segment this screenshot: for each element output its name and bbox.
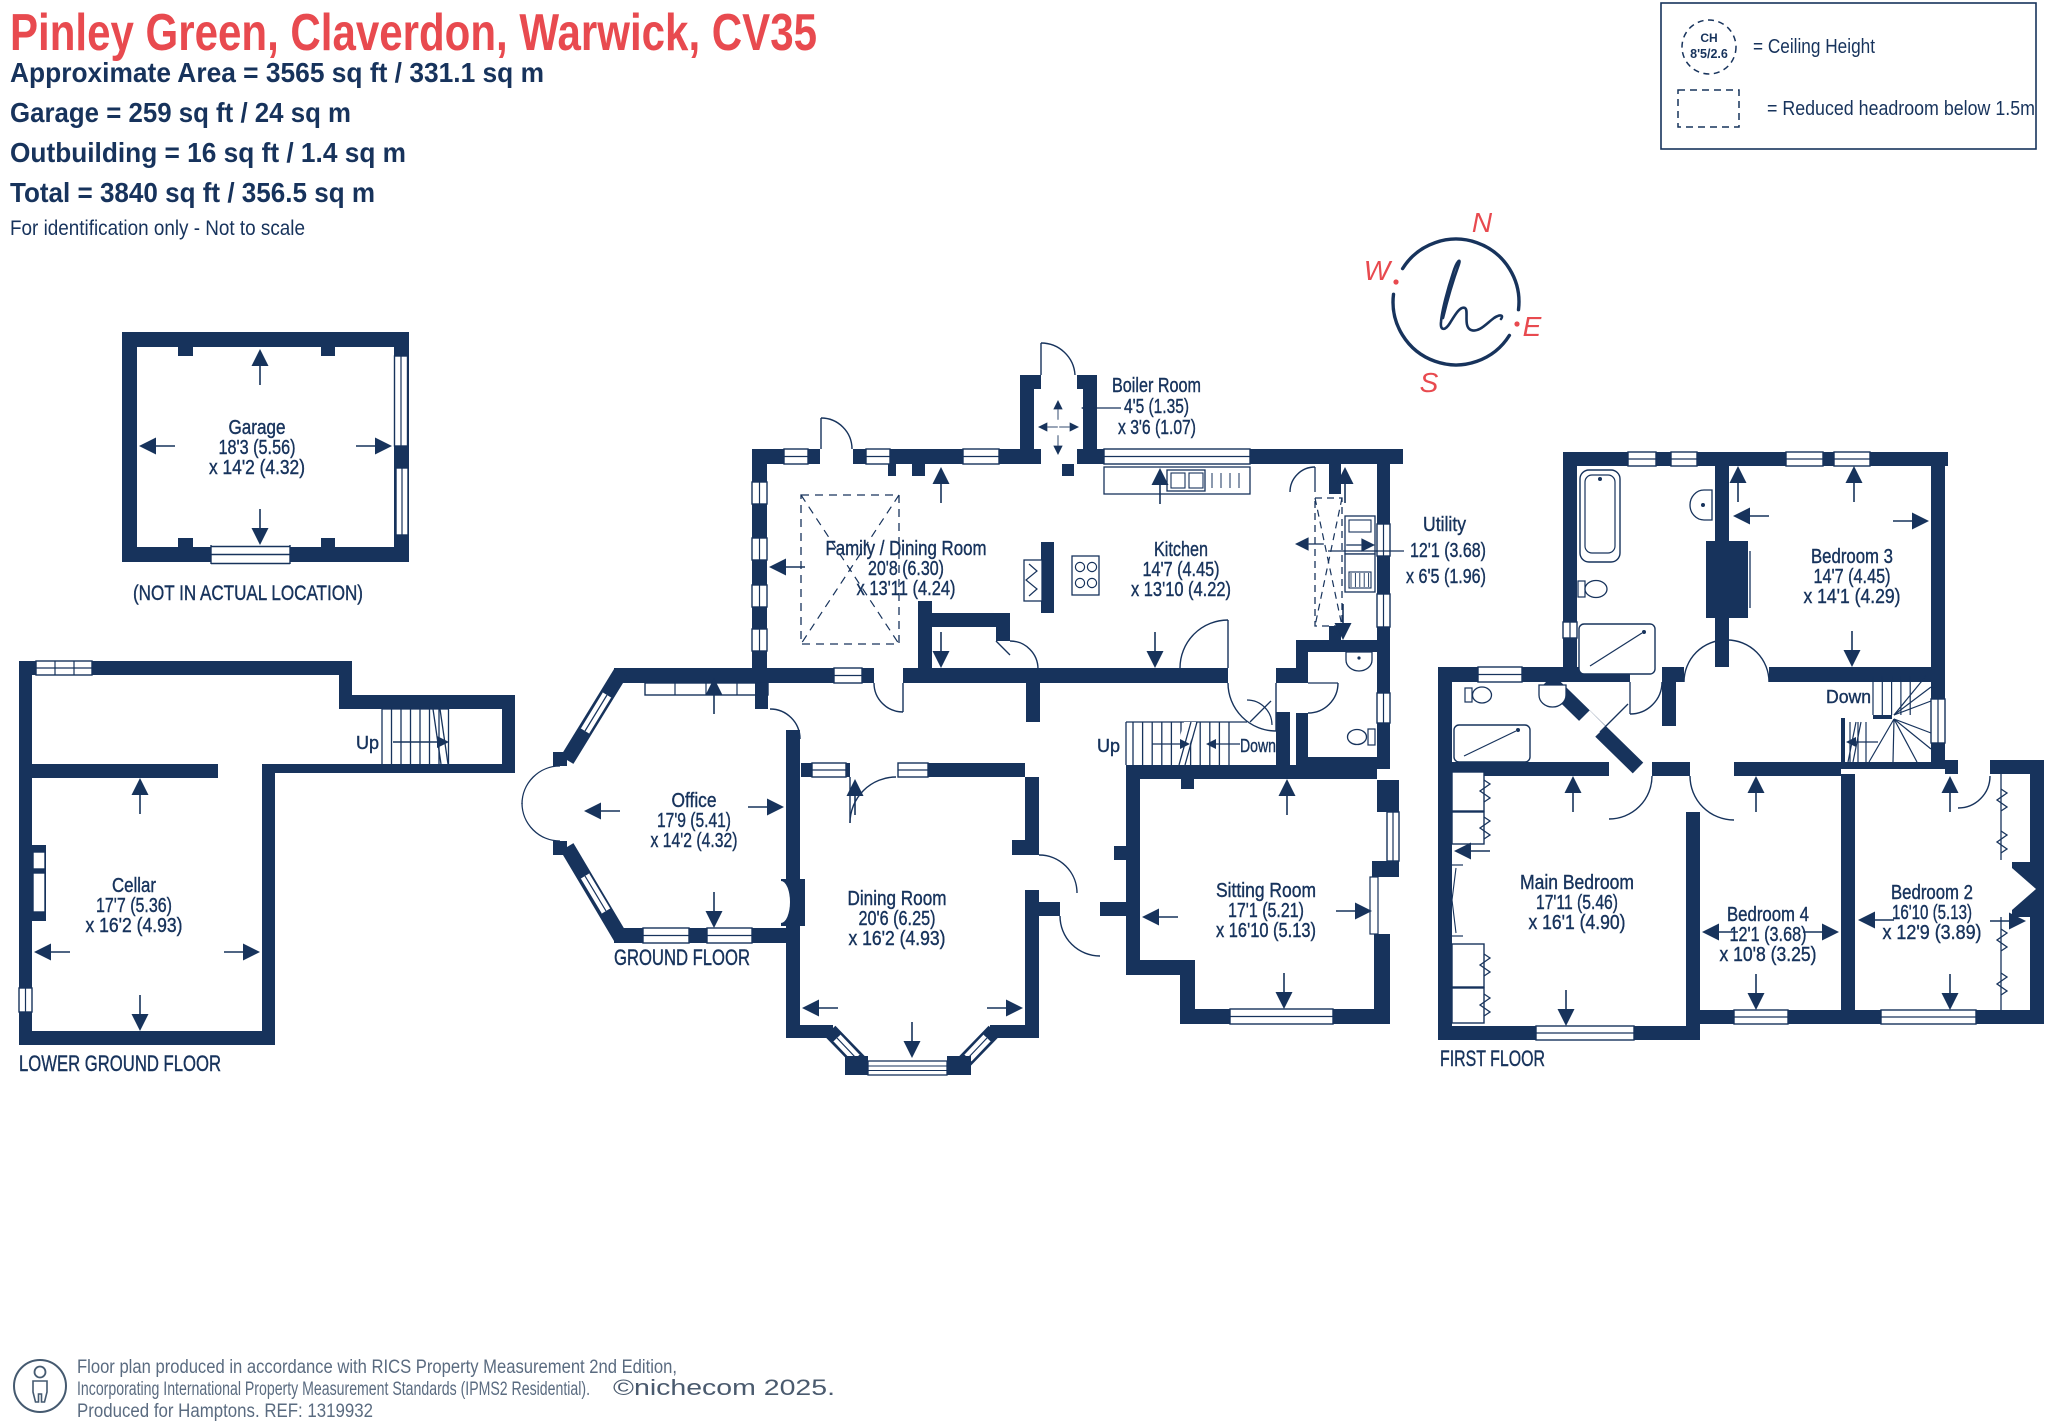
svg-text:Incorporating International Pr: Incorporating International Property Mea… <box>77 1379 590 1400</box>
svg-text:(NOT IN ACTUAL LOCATION): (NOT IN ACTUAL LOCATION) <box>133 582 363 605</box>
svg-text:W: W <box>1364 255 1393 286</box>
svg-text:Family / Dining Room: Family / Dining Room <box>826 538 987 560</box>
svg-text:Office: Office <box>672 790 717 812</box>
svg-text:14'7 (4.45): 14'7 (4.45) <box>1814 566 1891 588</box>
svg-text:For identification only - Not: For identification only - Not to scale <box>10 217 305 240</box>
svg-text:CH: CH <box>1700 31 1717 45</box>
svg-text:Bedroom 3: Bedroom 3 <box>1811 546 1893 568</box>
svg-text:4'5 (1.35): 4'5 (1.35) <box>1124 396 1189 418</box>
svg-text:17'7 (5.36): 17'7 (5.36) <box>96 895 172 917</box>
svg-text:Up: Up <box>1097 736 1120 756</box>
svg-text:x 14'1 (4.29): x 14'1 (4.29) <box>1804 586 1901 608</box>
svg-text:Floor plan produced in accorda: Floor plan produced in accordance with R… <box>77 1357 677 1378</box>
svg-text:Outbuilding = 16 sq ft / 1.4 s: Outbuilding = 16 sq ft / 1.4 sq m <box>10 137 406 168</box>
svg-text:14'7 (4.45): 14'7 (4.45) <box>1143 559 1220 581</box>
svg-text:Boiler Room: Boiler Room <box>1112 375 1201 397</box>
svg-text:8'5/2.6: 8'5/2.6 <box>1690 47 1728 61</box>
svg-text:x 10'8 (3.25): x 10'8 (3.25) <box>1720 944 1817 966</box>
svg-text:20'6 (6.25): 20'6 (6.25) <box>859 908 936 930</box>
svg-text:x 13'11 (4.24): x 13'11 (4.24) <box>857 578 956 600</box>
svg-text:x 3'6 (1.07): x 3'6 (1.07) <box>1118 417 1196 439</box>
svg-text:x 16'2 (4.93): x 16'2 (4.93) <box>849 928 946 950</box>
svg-text:Up: Up <box>356 733 379 753</box>
svg-text:Sitting Room: Sitting Room <box>1216 880 1316 902</box>
svg-text:x 13'10 (4.22): x 13'10 (4.22) <box>1131 579 1231 601</box>
svg-text:Bedroom 2: Bedroom 2 <box>1891 882 1973 904</box>
svg-text:GROUND FLOOR: GROUND FLOOR <box>614 945 750 970</box>
svg-text:12'1 (3.68): 12'1 (3.68) <box>1410 540 1486 562</box>
svg-text:x 14'2 (4.32): x 14'2 (4.32) <box>651 830 738 852</box>
svg-text:S: S <box>1420 367 1439 398</box>
svg-text:©nichecom 2025.: ©nichecom 2025. <box>613 1375 835 1400</box>
svg-text:Bedroom 4: Bedroom 4 <box>1727 904 1809 926</box>
svg-text:Kitchen: Kitchen <box>1154 539 1208 561</box>
svg-text:LOWER GROUND FLOOR: LOWER GROUND FLOOR <box>19 1051 221 1076</box>
svg-text:Main Bedroom: Main Bedroom <box>1520 872 1634 894</box>
svg-text:Produced for Hamptons. REF:: Produced for Hamptons. REF: 1319932 <box>77 1401 373 1422</box>
svg-text:Garage = 259 sq ft / 24 sq m: Garage = 259 sq ft / 24 sq m <box>10 97 351 128</box>
svg-text:18'3 (5.56): 18'3 (5.56) <box>219 437 296 459</box>
svg-text:= Reduced headroom below 1.5m: = Reduced headroom below 1.5m <box>1767 98 2035 120</box>
svg-text:N: N <box>1472 207 1493 238</box>
svg-text:Utility: Utility <box>1423 514 1466 536</box>
svg-text:Total = 3840 sq ft / 356.5 sq: Total = 3840 sq ft / 356.5 sq m <box>10 177 375 208</box>
svg-text:Dining Room: Dining Room <box>848 888 947 910</box>
svg-text:= Ceiling Height: = Ceiling Height <box>1753 36 1875 58</box>
svg-text:Garage: Garage <box>229 417 286 439</box>
svg-text:17'9 (5.41): 17'9 (5.41) <box>657 810 731 832</box>
svg-text:x 12'9 (3.89): x 12'9 (3.89) <box>1883 922 1982 944</box>
svg-text:16'10 (5.13): 16'10 (5.13) <box>1892 902 1972 924</box>
svg-text:x 6'5 (1.96): x 6'5 (1.96) <box>1406 566 1486 588</box>
svg-text:x 16'1 (4.90): x 16'1 (4.90) <box>1529 912 1626 934</box>
svg-text:17'11 (5.46): 17'11 (5.46) <box>1536 892 1618 914</box>
svg-text:Pinley Green, Claverdon, Warwi: Pinley Green, Claverdon, Warwick, CV35 <box>10 4 817 62</box>
svg-text:Down: Down <box>1240 736 1276 756</box>
svg-text:Down: Down <box>1826 687 1871 707</box>
svg-text:12'1 (3.68): 12'1 (3.68) <box>1730 924 1807 946</box>
svg-text:20'8 (6.30): 20'8 (6.30) <box>868 558 944 580</box>
svg-text:E: E <box>1523 311 1542 342</box>
svg-text:17'1 (5.21): 17'1 (5.21) <box>1228 900 1304 922</box>
svg-text:x 16'2 (4.93): x 16'2 (4.93) <box>86 915 183 937</box>
svg-text:Approximate Area = 3565 sq ft: Approximate Area = 3565 sq ft / 331.1 sq… <box>10 57 544 88</box>
svg-text:FIRST FLOOR: FIRST FLOOR <box>1440 1046 1545 1071</box>
svg-text:x 14'2 (4.32): x 14'2 (4.32) <box>209 457 305 479</box>
svg-text:x 16'10 (5.13): x 16'10 (5.13) <box>1216 920 1316 942</box>
svg-text:Cellar: Cellar <box>112 875 156 897</box>
